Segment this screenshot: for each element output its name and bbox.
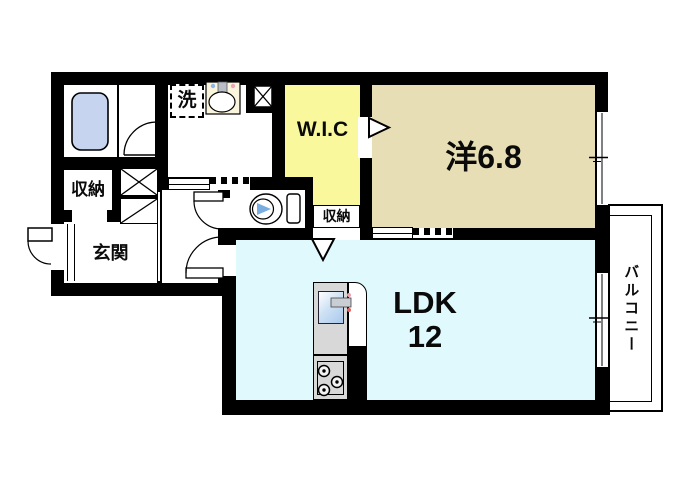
label-ldk-line2: 12 (408, 320, 442, 354)
room-bath-anteroom (119, 85, 155, 157)
room-toilet (230, 190, 305, 228)
entrance-door-leaf (28, 228, 52, 241)
laundry-space: 洗 (170, 84, 204, 118)
washroom-opening-dashed (210, 177, 250, 190)
label-closet-wic: 収納 (313, 207, 360, 227)
label-western-room: 洋6.8 (372, 136, 595, 180)
label-wic: W.I.C (285, 117, 360, 143)
room-hallway (162, 190, 218, 283)
closet-entry-opening (72, 210, 107, 222)
toilet-doorway (218, 198, 230, 228)
label-ldk-line1: LDK (393, 286, 457, 320)
room-washroom-ext (246, 113, 272, 177)
label-laundry: 洗 (177, 91, 196, 112)
closet-wic-opening (313, 228, 360, 240)
label-closet-entry: 収納 (64, 177, 112, 203)
shaft-box-cross (120, 168, 158, 196)
room-wic-lower (313, 177, 360, 205)
shaft-box-diagonal (120, 198, 158, 224)
western-ldk-opening-dashed (413, 228, 453, 238)
label-ldk: LDK 12 (340, 281, 510, 359)
washroom-sliding-door (168, 178, 210, 190)
western-ldk-sliding-door (372, 227, 413, 239)
room-bathroom (64, 85, 117, 157)
label-entrance: 玄関 (64, 241, 157, 267)
ldk-doorway (218, 245, 236, 276)
western-window (597, 112, 608, 205)
label-balcony: バルコニー (616, 240, 644, 378)
hallway-partition-line (158, 192, 160, 281)
floor-plan: 洋6.8 LDK 12 W.I.C 収納 収納 玄関 洗 バルコニー (0, 0, 688, 484)
ldk-balcony-window (597, 273, 608, 367)
entrance-doorway (51, 224, 64, 270)
wic-western-doorway (358, 117, 372, 158)
entrance-door-arc (28, 241, 51, 264)
gas-stove-inner (317, 361, 344, 395)
